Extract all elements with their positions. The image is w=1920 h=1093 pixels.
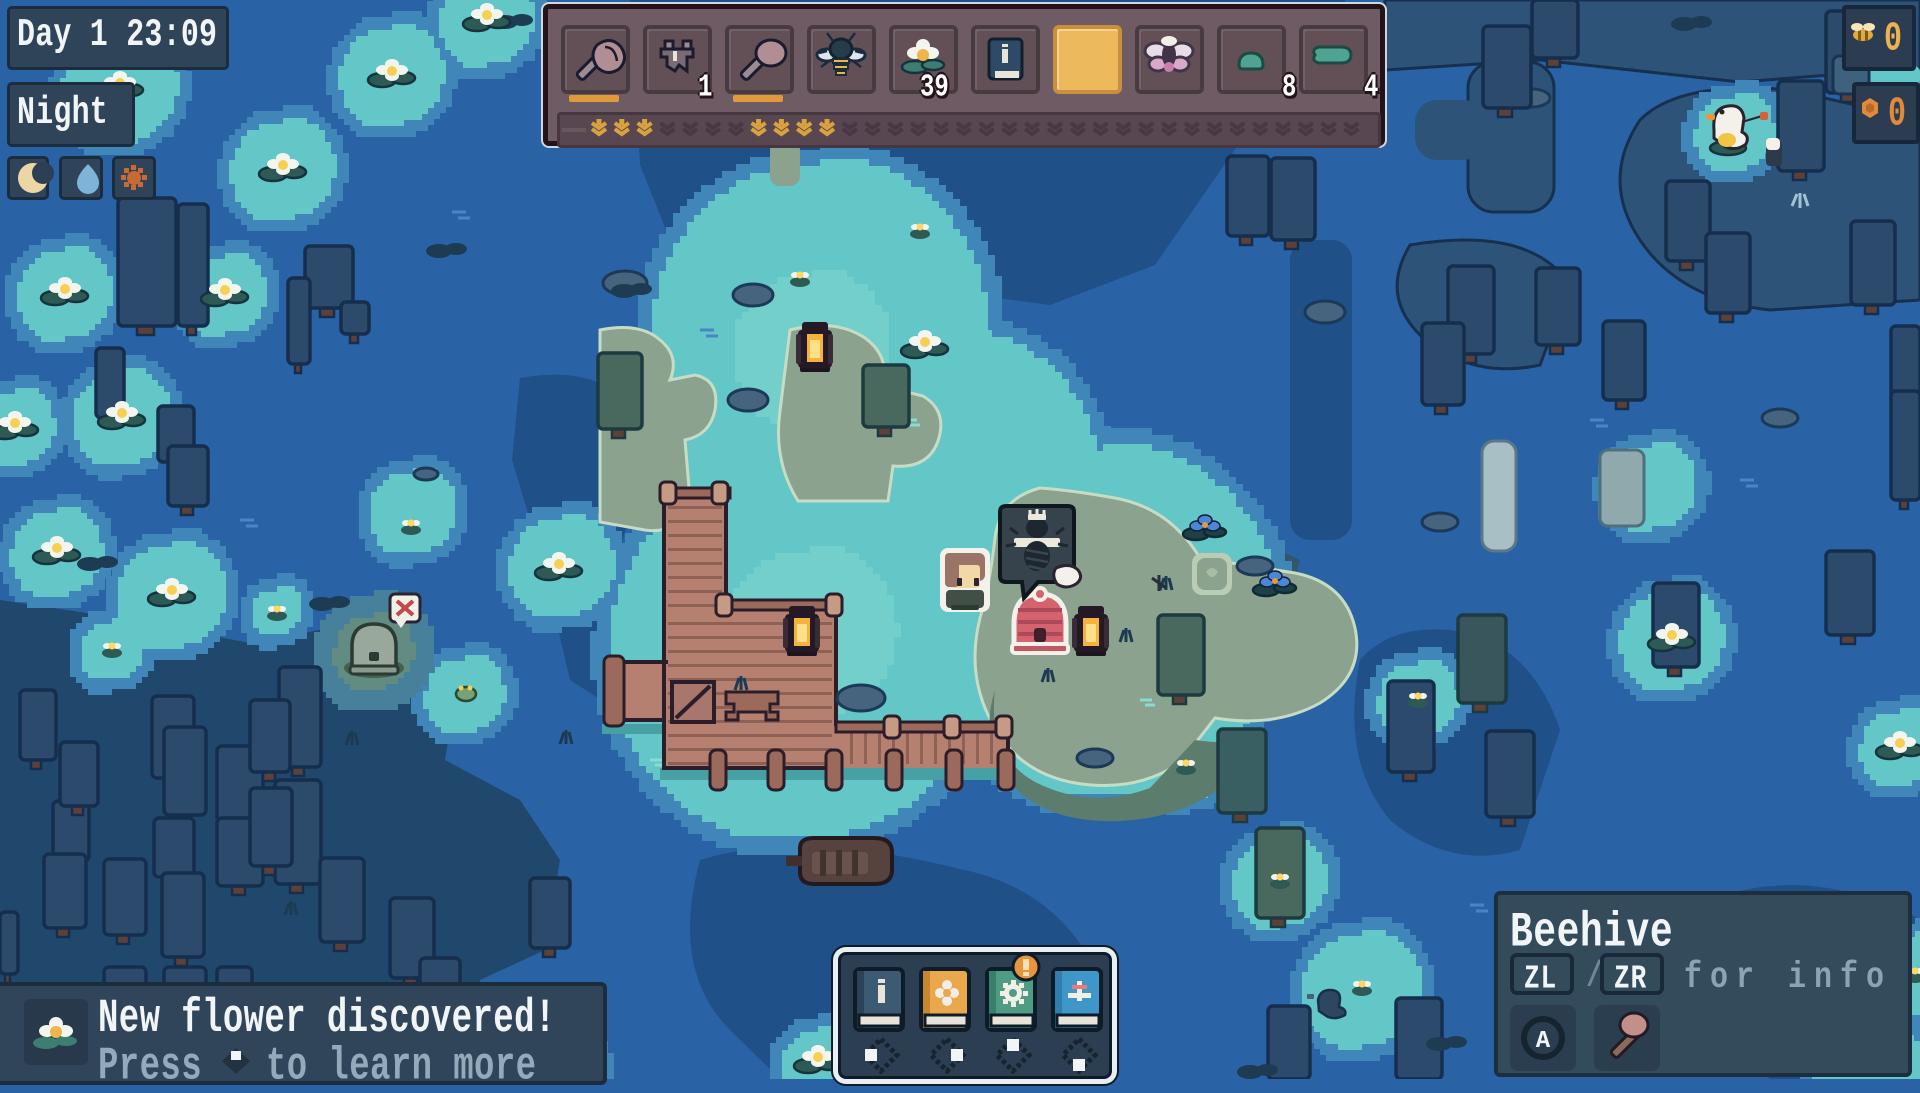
svg-text:A: A <box>1536 1028 1551 1055</box>
